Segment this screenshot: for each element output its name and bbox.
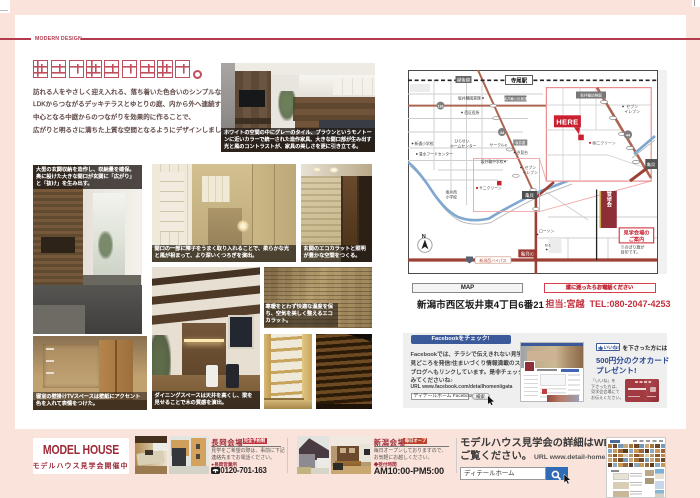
svg-text:ひらせい: ひらせい (454, 138, 469, 143)
svg-text:新通小学校: 新通小学校 (414, 141, 433, 146)
svg-text:N: N (421, 234, 425, 240)
svg-text:サークルK: サークルK (489, 142, 507, 147)
svg-text:小学校: 小学校 (445, 194, 457, 199)
svg-text:坂井西: 坂井西 (445, 189, 457, 194)
svg-text:イレブン: イレブン (522, 170, 537, 175)
svg-text:ホームセンター: ホームセンター (450, 143, 477, 148)
svg-text:坂井輪公民館通: 坂井輪公民館通 (503, 96, 527, 101)
svg-text:西区役所: 西区役所 (464, 110, 479, 115)
svg-text:116: 116 (437, 104, 443, 108)
svg-text:亀貝IC: 亀貝IC (520, 250, 533, 257)
svg-text:N-1: N-1 (544, 243, 550, 247)
svg-text:坂井輪幼稚園: 坂井輪幼稚園 (580, 92, 602, 97)
svg-text:新潟西バイパス: 新潟西バイパス (479, 257, 506, 262)
svg-text:坂井屋: 坂井屋 (515, 140, 526, 145)
svg-text:亀貝: 亀貝 (646, 160, 654, 167)
svg-text:見学会場の: 見学会場の (622, 228, 649, 236)
svg-text:㈱ニクリーン: ㈱ニクリーン (592, 140, 615, 145)
svg-text:汐見台: 汐見台 (516, 150, 528, 155)
svg-text:イレブン: イレブン (624, 109, 640, 114)
svg-text:清水フードセンター: 清水フードセンター (418, 151, 452, 156)
svg-text:セブン: セブン (524, 165, 536, 170)
svg-text:HERE: HERE (556, 117, 578, 126)
svg-text:坂井輪中学校: 坂井輪中学校 (480, 159, 503, 164)
svg-text:越後線: 越後線 (456, 76, 470, 83)
svg-text:ご案内: ご案内 (628, 234, 644, 242)
svg-text:目印です。: 目印です。 (620, 248, 640, 254)
svg-text:亀貝: 亀貝 (525, 192, 534, 199)
svg-text:ローソン: ローソン (539, 229, 554, 233)
svg-text:完成見学会: 完成見学会 (605, 181, 612, 208)
svg-text:寺尾駅: 寺尾駅 (510, 76, 527, 84)
svg-text:坂井輪図書館: 坂井輪図書館 (458, 95, 481, 100)
svg-text:サニクリーン: サニクリーン (479, 185, 502, 190)
